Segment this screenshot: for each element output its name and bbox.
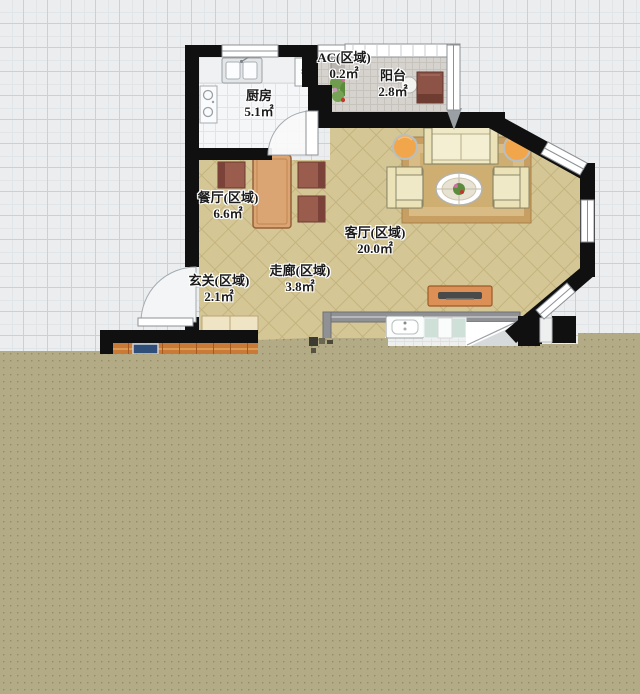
room-area: 2.8㎡ [378,84,407,100]
room-name: 玄关(区域) [189,273,250,289]
room-label-entry[interactable]: 玄关(区域) 2.1㎡ [189,273,250,306]
room-area: 3.8㎡ [270,279,331,295]
room-name: 餐厅(区域) [198,190,259,206]
room-area: 2.1㎡ [189,289,250,305]
room-labels: AC(区域) 0.2㎡ 阳台 2.8㎡ 厨房 5.1㎡ 餐厅(区域) 6.6㎡ … [0,0,640,694]
room-name: AC(区域) [317,50,370,66]
room-area: 0.2㎡ [317,66,370,82]
room-label-balcony[interactable]: 阳台 2.8㎡ [378,68,407,101]
room-label-living[interactable]: 客厅(区域) 20.0㎡ [345,225,406,258]
room-label-corridor[interactable]: 走廊(区域) 3.8㎡ [270,263,331,296]
room-name: 阳台 [378,68,407,84]
room-area: 6.6㎡ [198,206,259,222]
room-label-dining[interactable]: 餐厅(区域) 6.6㎡ [198,190,259,223]
floorplan-canvas: AC(区域) 0.2㎡ 阳台 2.8㎡ 厨房 5.1㎡ 餐厅(区域) 6.6㎡ … [0,0,640,694]
room-label-ac-zone[interactable]: AC(区域) 0.2㎡ [317,50,370,83]
room-label-kitchen[interactable]: 厨房 5.1㎡ [244,88,273,121]
room-name: 客厅(区域) [345,225,406,241]
room-area: 5.1㎡ [244,104,273,120]
room-name: 走廊(区域) [270,263,331,279]
room-area: 20.0㎡ [345,241,406,257]
room-name: 厨房 [244,88,273,104]
